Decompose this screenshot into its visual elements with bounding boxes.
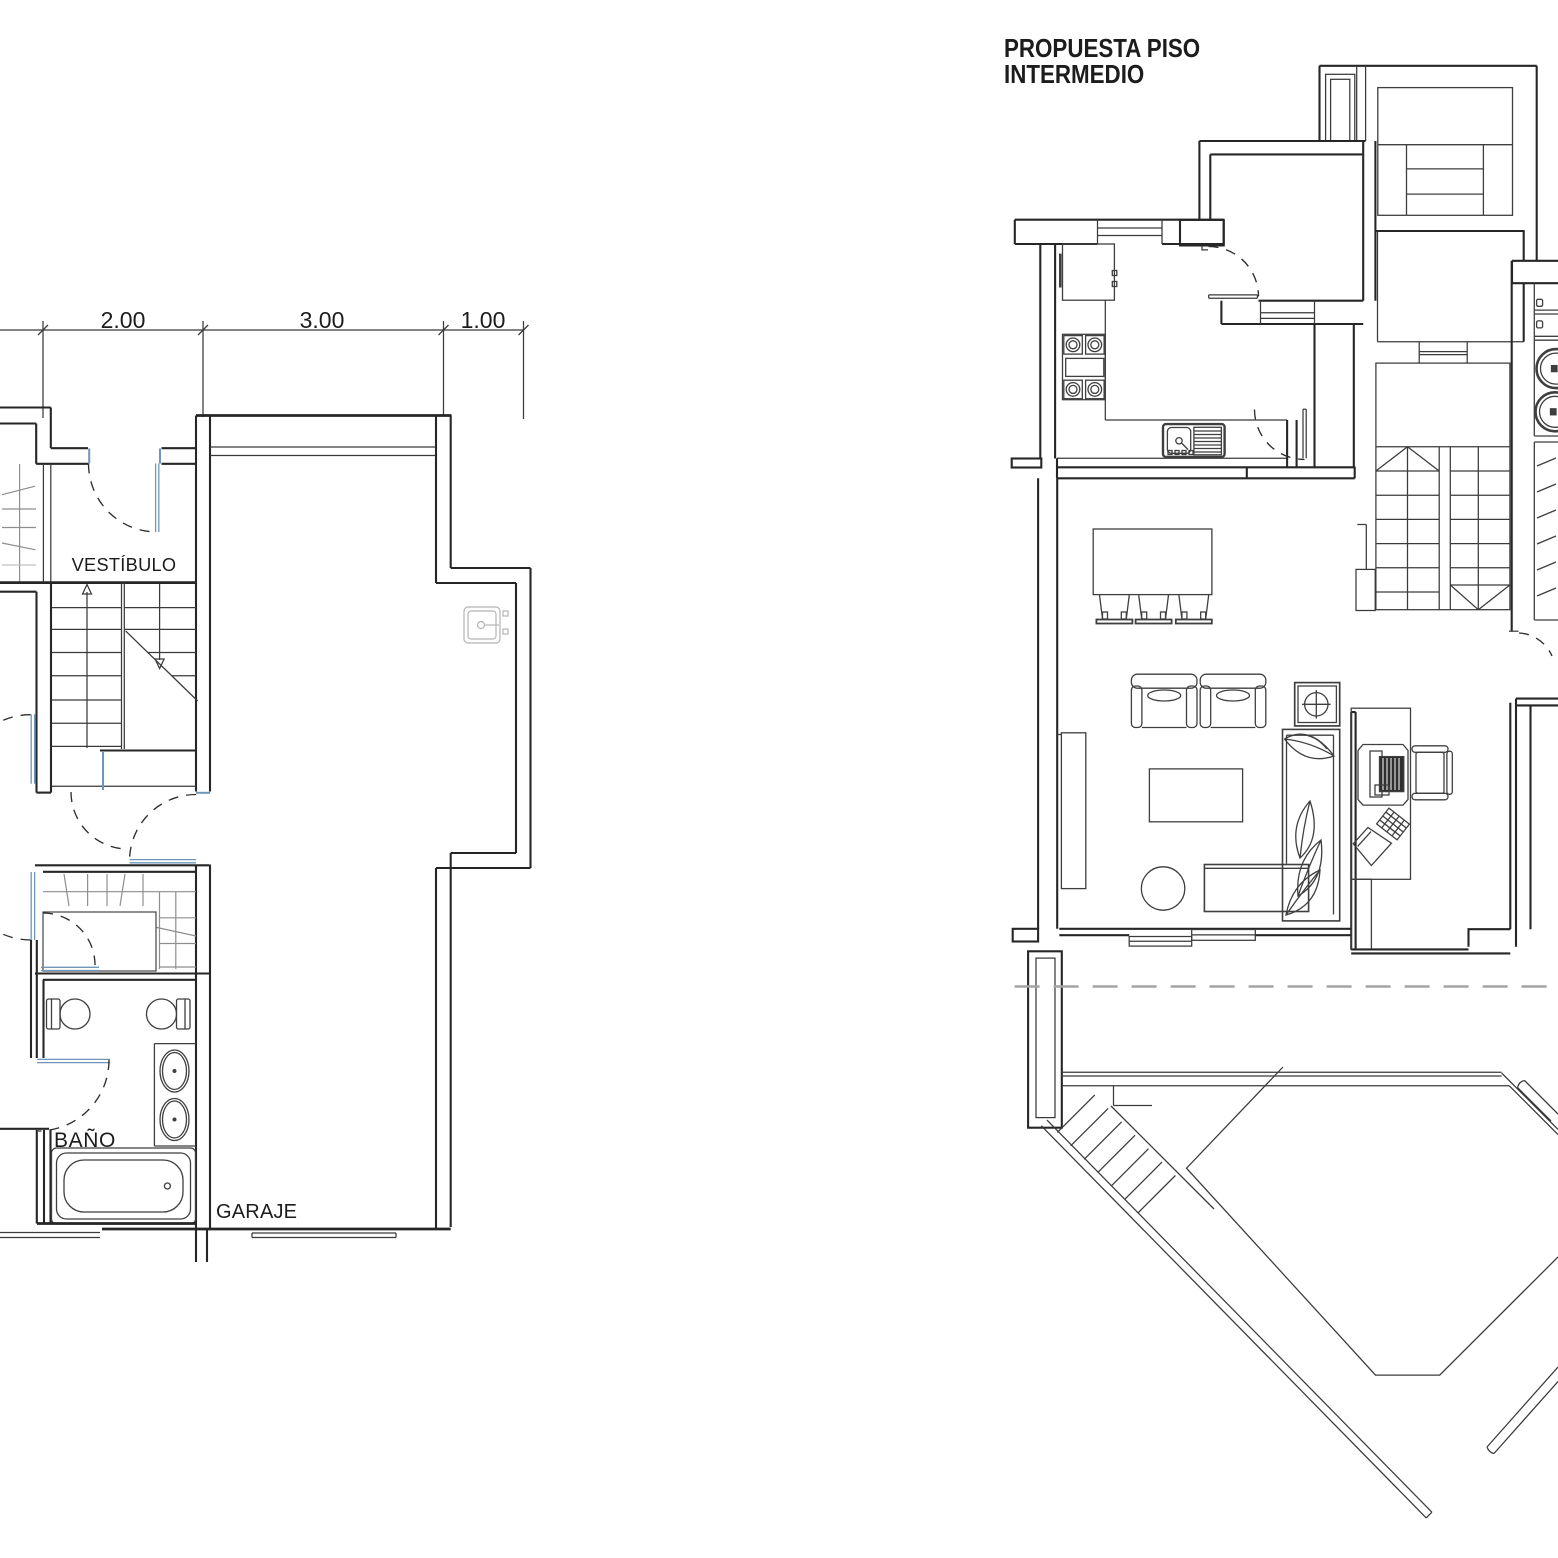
svg-text:2.00: 2.00 xyxy=(101,307,146,333)
svg-text:GARAJE: GARAJE xyxy=(216,1201,297,1223)
svg-text:VESTÍBULO: VESTÍBULO xyxy=(72,555,177,575)
svg-text:3.00: 3.00 xyxy=(300,307,345,333)
svg-text:PROPUESTA PISO: PROPUESTA PISO xyxy=(1004,34,1200,63)
svg-text:1.00: 1.00 xyxy=(461,307,506,333)
svg-text:INTERMEDIO: INTERMEDIO xyxy=(1004,60,1144,89)
